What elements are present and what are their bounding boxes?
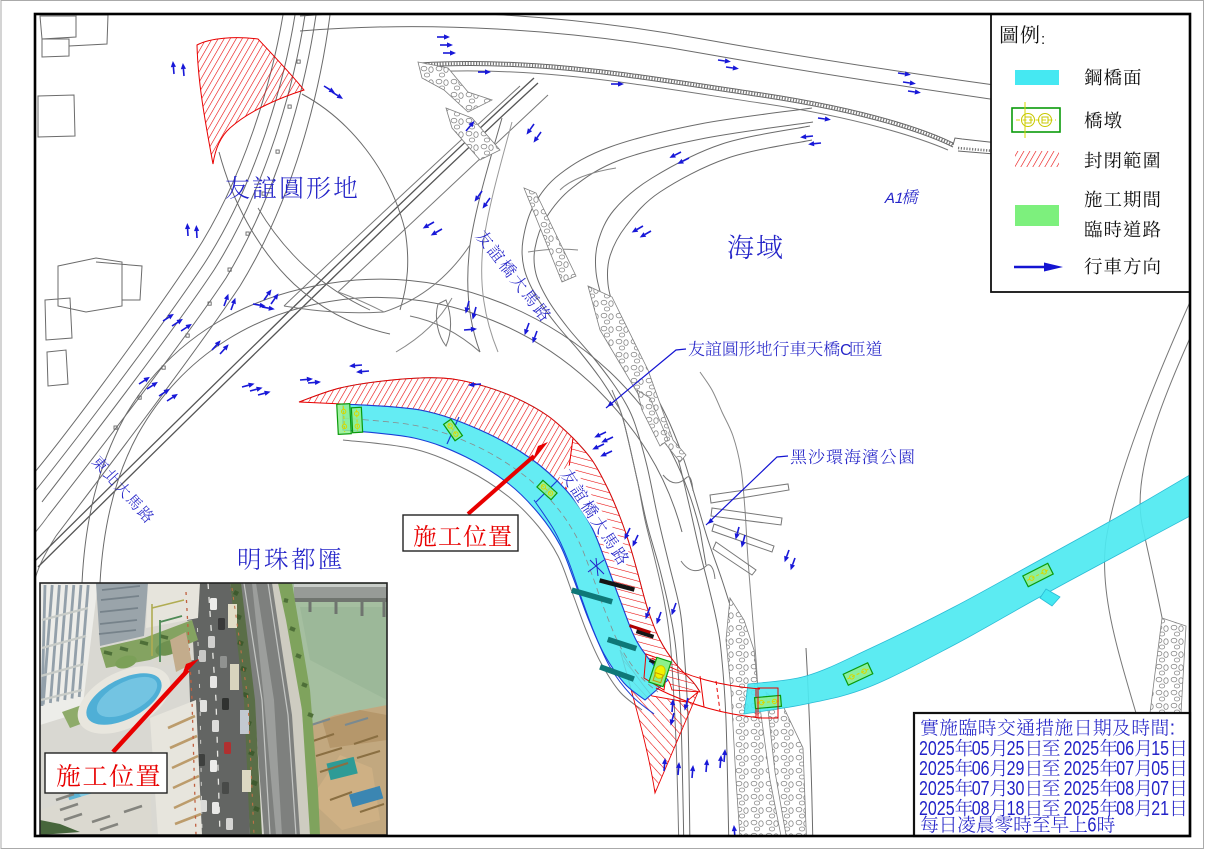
svg-text:30: 30 bbox=[1007, 777, 1025, 799]
svg-text::: : bbox=[1170, 718, 1176, 740]
svg-text:2025: 2025 bbox=[919, 737, 955, 759]
svg-text:2025: 2025 bbox=[1064, 777, 1100, 799]
svg-text:08: 08 bbox=[1116, 777, 1134, 799]
svg-text:08: 08 bbox=[972, 797, 990, 819]
svg-text::: : bbox=[1041, 31, 1045, 48]
svg-text:C: C bbox=[840, 342, 851, 359]
svg-text:08: 08 bbox=[1116, 797, 1134, 819]
svg-text:2025: 2025 bbox=[919, 777, 955, 799]
svg-text:06: 06 bbox=[1116, 737, 1134, 759]
svg-text:07: 07 bbox=[1116, 757, 1134, 779]
svg-text:6: 6 bbox=[1087, 813, 1096, 836]
svg-text:2025: 2025 bbox=[919, 757, 955, 779]
svg-text:25: 25 bbox=[1007, 737, 1025, 759]
svg-text:06: 06 bbox=[972, 757, 990, 779]
svg-text:2025: 2025 bbox=[919, 797, 955, 819]
svg-text:15: 15 bbox=[1151, 737, 1169, 759]
svg-text:2025: 2025 bbox=[1064, 737, 1100, 759]
svg-text:21: 21 bbox=[1151, 797, 1169, 819]
svg-text:05: 05 bbox=[972, 737, 990, 759]
svg-text:07: 07 bbox=[1151, 777, 1169, 799]
svg-text:29: 29 bbox=[1007, 757, 1025, 779]
svg-text:2025: 2025 bbox=[1064, 757, 1100, 779]
svg-text:07: 07 bbox=[972, 777, 990, 799]
svg-text:05: 05 bbox=[1151, 757, 1169, 779]
